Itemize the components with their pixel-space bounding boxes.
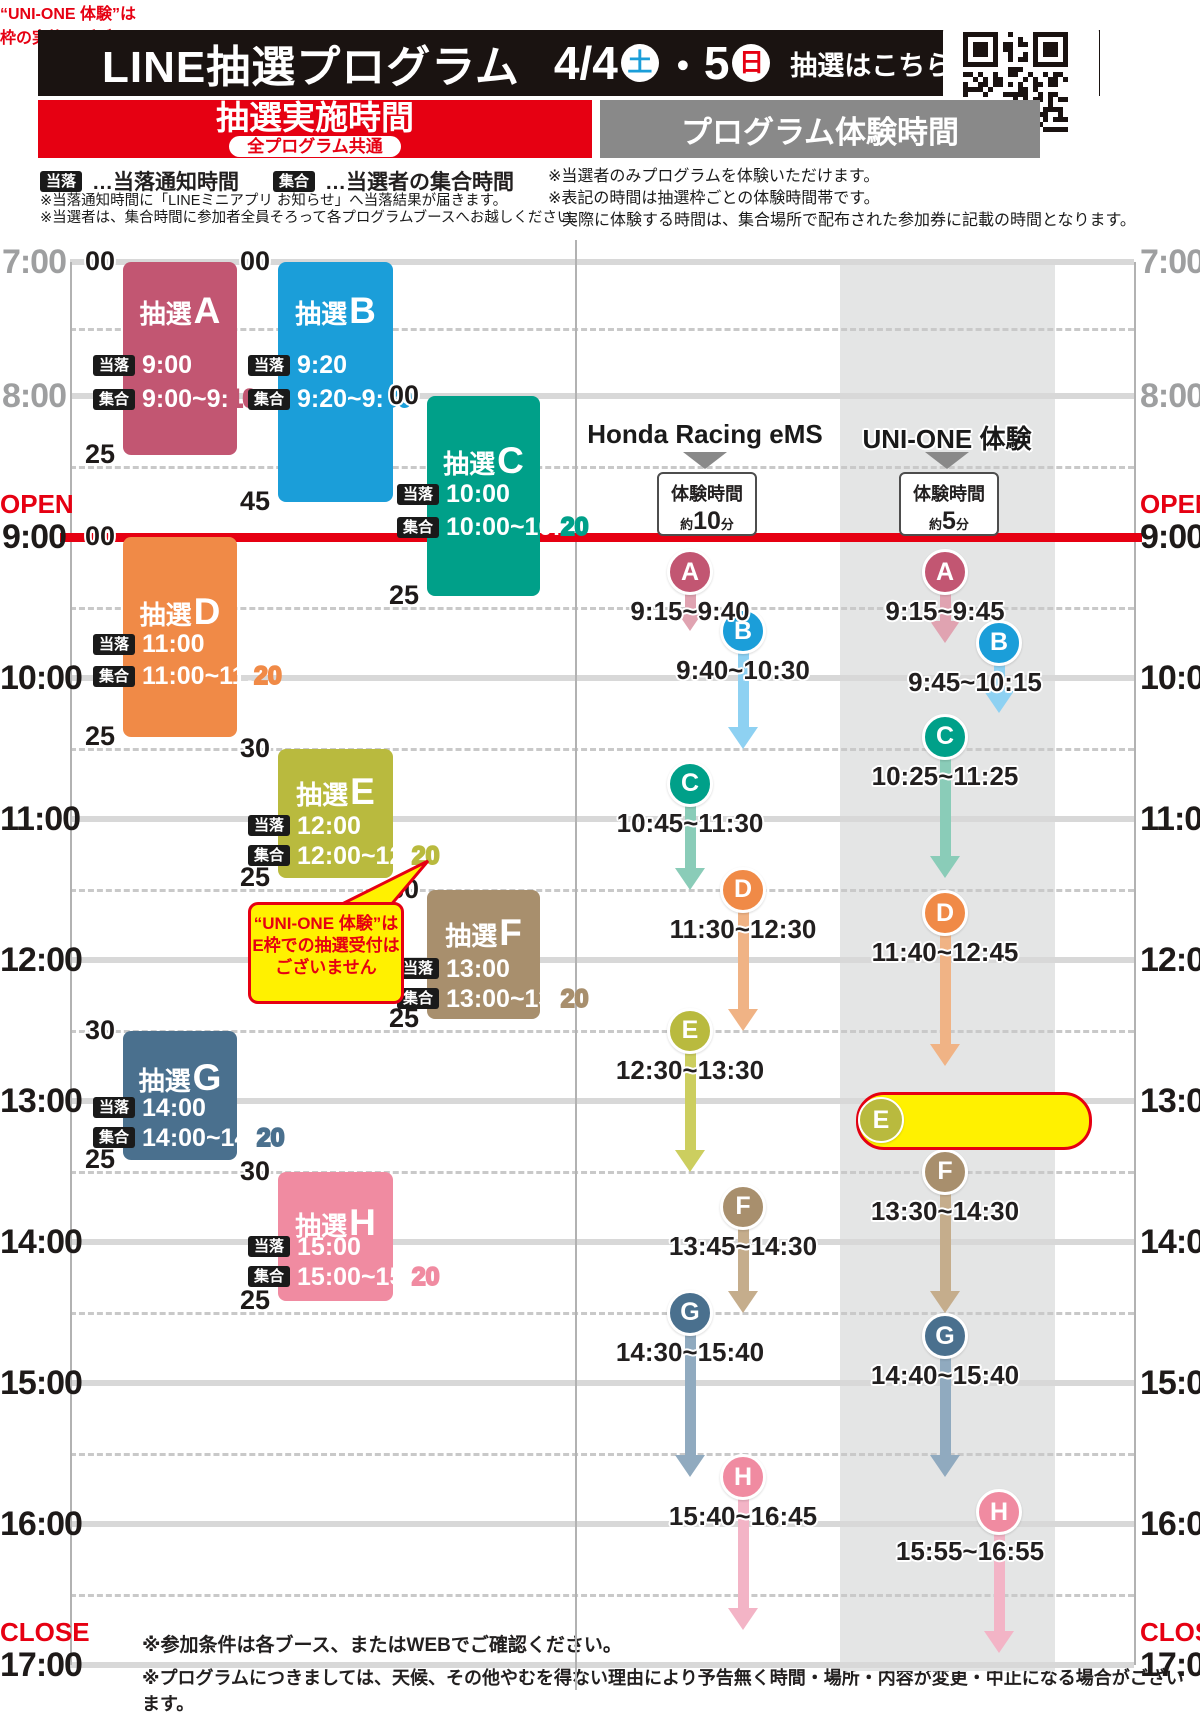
experience-1-E-badge: E (667, 1008, 713, 1054)
block-H-start-minute-label: 30 (186, 1156, 270, 1187)
block-D-title: 抽選D (123, 591, 237, 633)
experience-note-3: 実際に体験する時間は、集合場所で配布された参加券に記載の時間となります。 (548, 210, 1136, 232)
lottery-time-title: 抽選実施時間 (216, 101, 414, 135)
uni-one-e-callout-badge: E (858, 1097, 904, 1143)
experience-1-H-time-label: 15:40~16:45 (623, 1501, 863, 1532)
experience-column-header-2: UNI-ONE 体験 (787, 419, 1107, 456)
experience-1-C-time-label: 10:45~11:30 (570, 808, 810, 839)
experience-1-C-arrow-head (675, 868, 705, 890)
experience-1-A-badge: A (667, 549, 713, 595)
block-H-shugo-row: 集合15:00~15:20 (248, 1264, 440, 1290)
block-E-start-minute-label: 30 (186, 733, 270, 764)
experience-note-1: ※当選者のみプログラムを体験いただけます。 (548, 166, 1136, 188)
experience-1-B-time-label: 9:40~10:30 (623, 655, 863, 686)
experience-2-C-arrow-head (930, 856, 960, 878)
block-C-end-minute-label: 25 (335, 580, 419, 611)
hour-label-left: 12:00 (0, 943, 66, 977)
hour-label-right: 11:00 (1140, 802, 1200, 836)
experience-2-H-badge: H (976, 1489, 1022, 1535)
shugo-desc: …当選者の集合時間 (325, 166, 514, 196)
experience-duration-box-1: 体験時間約10分 (657, 472, 757, 536)
title-row: LINE抽選プログラム 4/4 土 ・ 5 日 (102, 31, 773, 95)
block-A-end-minute-label: 25 (31, 439, 115, 470)
experience-1-G-badge: G (667, 1290, 713, 1336)
block-F-shugo-row: 集合13:00~13:20 (397, 986, 589, 1012)
hour-label-left: 17:00 (0, 1648, 66, 1682)
block-D-shugo-row: 集合11:00~11:20 (93, 663, 282, 689)
experience-notes: ※当選者のみプログラムを体験いただけます。※表記の時間は抽選枠ごとの体験時間帯で… (548, 166, 1136, 232)
block-B-start-minute-label: 00 (186, 246, 270, 277)
timeline-close-label-left: CLOSE (0, 1619, 66, 1645)
block-F-touraku-row: 当落13:00 (397, 956, 510, 982)
lottery-note-2: ※当選者は、集合時間に参加者全員そろって各プログラムブースへお越しください。 (40, 210, 586, 227)
block-C-start-minute-label: 00 (335, 380, 419, 411)
lottery-note-1: ※当落通知時間に「LINEミニアプリ お知らせ」へ当落結果が届きます。 (40, 193, 586, 210)
block-E-title: 抽選E (278, 771, 393, 813)
column-header-arrow-icon (925, 452, 969, 469)
experience-2-D-arrow-head (930, 1044, 960, 1066)
experience-1-H-badge: H (720, 1454, 766, 1500)
experience-2-H-time-label: 15:55~16:55 (850, 1536, 1090, 1567)
hour-label-left: 16:00 (0, 1507, 66, 1541)
block-A-touraku-row: 当落9:00 (93, 352, 192, 378)
block-F-title: 抽選F (427, 912, 540, 954)
experience-1-C-badge: C (667, 761, 713, 807)
hour-label-left: 11:00 (0, 802, 66, 836)
hour-gridline (70, 1239, 1134, 1245)
experience-2-F-time-label: 13:30~14:30 (825, 1196, 1065, 1227)
hour-label-right: 10:00 (1140, 661, 1200, 695)
legend: 当落 …当落通知時間 集合 …当選者の集合時間 (40, 166, 514, 196)
block-G-touraku-row: 当落14:00 (93, 1095, 206, 1121)
block-A-shugo-row: 集合9:00~9:10 (93, 386, 257, 412)
hour-label-right: 12:00 (1140, 943, 1200, 977)
shugo-badge: 集合 (273, 171, 315, 192)
hour-label-right: 9:00 (1140, 520, 1200, 554)
block-H-touraku-row: 当落15:00 (248, 1234, 361, 1260)
hour-label-left: 10:00 (0, 661, 66, 695)
block-G-title: 抽選G (123, 1057, 237, 1099)
event-date-2: 5 (704, 36, 730, 90)
experience-2-G-time-label: 14:40~15:40 (825, 1360, 1065, 1391)
column-separator-line (575, 240, 577, 1690)
experience-2-C-badge: C (922, 714, 968, 760)
experience-time-title: プログラム体験時間 (681, 107, 959, 152)
experience-2-A-badge: A (922, 549, 968, 595)
experience-1-H-arrow-head (728, 1608, 758, 1630)
block-B-end-minute-label: 45 (186, 486, 270, 517)
hour-label-right: 13:00 (1140, 1084, 1200, 1118)
hour-label-right: 16:00 (1140, 1507, 1200, 1541)
experience-1-F-arrow-head (728, 1291, 758, 1313)
hour-label-right: 14:00 (1140, 1225, 1200, 1259)
experience-2-D-badge: D (922, 890, 968, 936)
block-E-touraku-row: 当落12:00 (248, 813, 361, 839)
block-A-start-minute-label: 00 (31, 246, 115, 277)
experience-1-D-arrow-head (728, 1009, 758, 1031)
experience-1-E-arrow-head (675, 1150, 705, 1172)
hour-label-left: 14:00 (0, 1225, 66, 1259)
block-G-shugo-row: 集合14:00~14:20 (93, 1125, 285, 1151)
touraku-desc: …当落通知時間 (92, 166, 239, 196)
sunday-badge: 日 (732, 44, 770, 82)
experience-1-B-arrow-head (728, 727, 758, 749)
block-A-title: 抽選A (123, 290, 237, 332)
experience-1-D-badge: D (720, 867, 766, 913)
saturday-badge: 土 (621, 44, 659, 82)
experience-1-F-badge: F (720, 1184, 766, 1230)
hour-label-left: 15:00 (0, 1366, 66, 1400)
footer-note-2: ※プログラムにつきましては、天候、その他やむを得ない理由により予告無く時間・場所… (142, 1664, 1200, 1716)
experience-duration-box-2: 体験時間約5分 (899, 472, 999, 536)
experience-2-A-time-label: 9:15~9:45 (825, 596, 1065, 627)
all-programs-pill: 全プログラム共通 (229, 136, 401, 157)
half-hour-gridline (70, 1594, 1134, 1597)
block-D-touraku-row: 当落11:00 (93, 631, 205, 657)
experience-2-B-time-label: 9:45~10:15 (855, 667, 1095, 698)
block-B-touraku-row: 当落9:20 (248, 352, 347, 378)
half-hour-gridline (70, 1453, 1134, 1456)
block-G-start-minute-label: 30 (31, 1015, 115, 1046)
column-header-arrow-icon (683, 452, 727, 469)
block-C-shugo-row: 集合10:00~10:20 (397, 514, 589, 540)
hour-label-left: 13:00 (0, 1084, 66, 1118)
experience-2-H-arrow-head (984, 1631, 1014, 1653)
experience-2-D-time-label: 11:40~12:45 (825, 937, 1065, 968)
title-bar: LINE抽選プログラム 4/4 土 ・ 5 日 抽選はこちら▶ (38, 30, 1100, 96)
block-e-callout-pointer (328, 858, 448, 908)
experience-2-F-arrow-head (930, 1291, 960, 1313)
schedule-poster: LINE抽選プログラム 4/4 土 ・ 5 日 抽選はこちら▶ 抽選実施時間 全… (0, 0, 1200, 1698)
experience-2-C-time-label: 10:25~11:25 (825, 761, 1065, 792)
experience-1-A-time-label: 9:15~9:40 (570, 596, 810, 627)
hour-gridline (70, 1521, 1134, 1527)
experience-1-E-time-label: 12:30~13:30 (570, 1055, 810, 1086)
hour-label-right: 7:00 (1140, 245, 1200, 279)
page-title: LINE抽選プログラム (102, 31, 520, 95)
hour-label-left: 8:00 (0, 379, 66, 413)
experience-1-G-arrow-head (675, 1455, 705, 1477)
experience-1-F-time-label: 13:45~14:30 (623, 1231, 863, 1262)
experience-time-header: プログラム体験時間 (600, 100, 1040, 158)
touraku-badge: 当落 (40, 171, 82, 192)
experience-2-G-arrow-head (930, 1455, 960, 1477)
right-axis-line (1134, 262, 1136, 1665)
timeline-open-label-right: OPEN (1140, 491, 1200, 517)
half-hour-gridline (70, 466, 1134, 469)
experience-2-G-badge: G (922, 1313, 968, 1359)
experience-2-F-badge: F (922, 1149, 968, 1195)
hour-gridline (70, 1662, 1134, 1668)
block-C-title: 抽選C (427, 440, 540, 482)
lottery-time-header: 抽選実施時間 全プログラム共通 (38, 100, 592, 158)
lottery-notes: ※当落通知時間に「LINEミニアプリ お知らせ」へ当落結果が届きます。※当選者は… (40, 193, 586, 227)
block-C-touraku-row: 当落10:00 (397, 481, 510, 507)
event-date-1: 4/4 (554, 36, 618, 90)
block-B-title: 抽選B (278, 290, 393, 332)
hour-label-right: 15:00 (1140, 1366, 1200, 1400)
date-separator: ・ (663, 34, 703, 92)
block-e-callout: “UNI-ONE 体験”はE枠での抽選受付はございません (248, 902, 404, 1004)
uni-one-e-callout-line-1: “UNI-ONE 体験”は (0, 0, 1200, 24)
timeline-close-label-right: CLOSE (1140, 1619, 1200, 1645)
timeline-open-label-left: OPEN (0, 491, 66, 517)
hour-label-right: 8:00 (1140, 379, 1200, 413)
block-D-end-minute-label: 25 (31, 721, 115, 752)
experience-1-G-time-label: 14:30~15:40 (570, 1337, 810, 1368)
hour-label-right: 17:00 (1140, 1648, 1200, 1682)
experience-note-2: ※表記の時間は抽選枠ごとの体験時間帯です。 (548, 188, 1136, 210)
block-D-start-minute-label: 00 (31, 521, 115, 552)
